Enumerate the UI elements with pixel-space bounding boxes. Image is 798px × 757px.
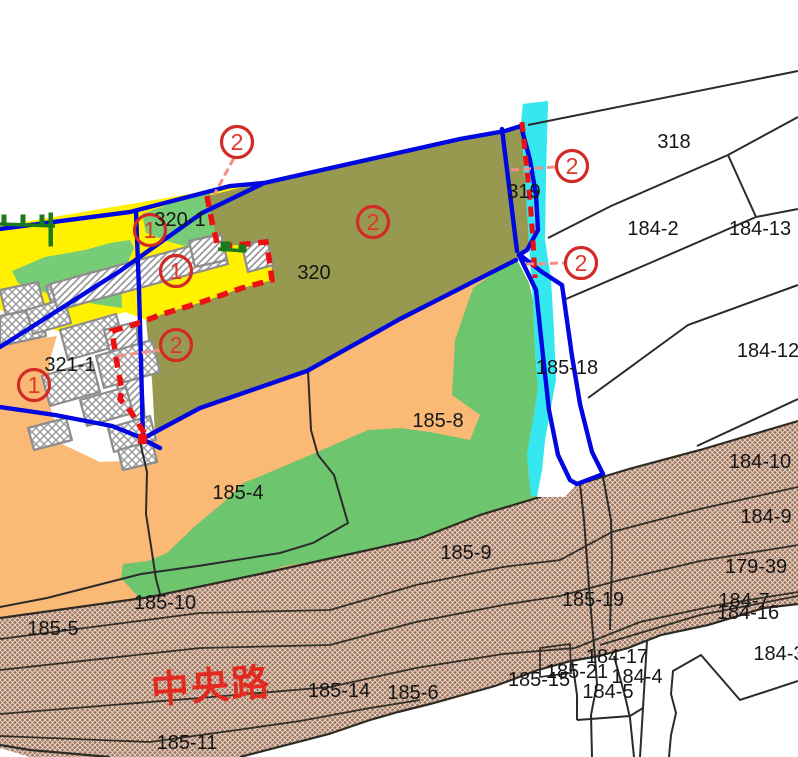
svg-text:184-16: 184-16 xyxy=(717,602,779,624)
svg-text:185-19: 185-19 xyxy=(562,589,624,611)
svg-text:185-5: 185-5 xyxy=(27,618,78,640)
svg-text:185-11: 185-11 xyxy=(157,732,218,754)
svg-text:184-9: 184-9 xyxy=(740,506,791,528)
svg-text:321-1: 321-1 xyxy=(44,354,95,376)
svg-text:184-3: 184-3 xyxy=(753,643,798,665)
svg-text:2: 2 xyxy=(367,209,380,235)
svg-text:184-12: 184-12 xyxy=(737,340,798,362)
svg-text:185-6: 185-6 xyxy=(387,682,438,704)
svg-text:2: 2 xyxy=(170,332,183,358)
svg-text:185-15: 185-15 xyxy=(508,669,570,691)
svg-text:185-10: 185-10 xyxy=(134,592,196,614)
svg-text:319: 319 xyxy=(507,181,540,203)
svg-text:2: 2 xyxy=(231,129,244,155)
svg-text:184-13: 184-13 xyxy=(729,218,791,240)
svg-text:179-39: 179-39 xyxy=(725,556,787,578)
svg-text:320: 320 xyxy=(297,262,330,284)
svg-text:185-18: 185-18 xyxy=(536,357,598,379)
svg-text:185-9: 185-9 xyxy=(440,542,491,564)
svg-text:184-2: 184-2 xyxy=(627,218,678,240)
svg-text:320-1: 320-1 xyxy=(154,209,205,231)
svg-text:1: 1 xyxy=(170,258,183,284)
svg-text:2: 2 xyxy=(575,250,588,276)
svg-text:185-8: 185-8 xyxy=(412,410,463,432)
svg-text:1: 1 xyxy=(28,372,41,398)
svg-text:2: 2 xyxy=(566,153,579,179)
svg-text:185-14: 185-14 xyxy=(308,680,370,702)
svg-text:318: 318 xyxy=(657,131,690,153)
svg-text:184-5: 184-5 xyxy=(582,681,633,703)
svg-text:中央路: 中央路 xyxy=(150,662,273,712)
svg-text:185-4: 185-4 xyxy=(212,482,263,504)
svg-text:184-10: 184-10 xyxy=(729,451,791,473)
